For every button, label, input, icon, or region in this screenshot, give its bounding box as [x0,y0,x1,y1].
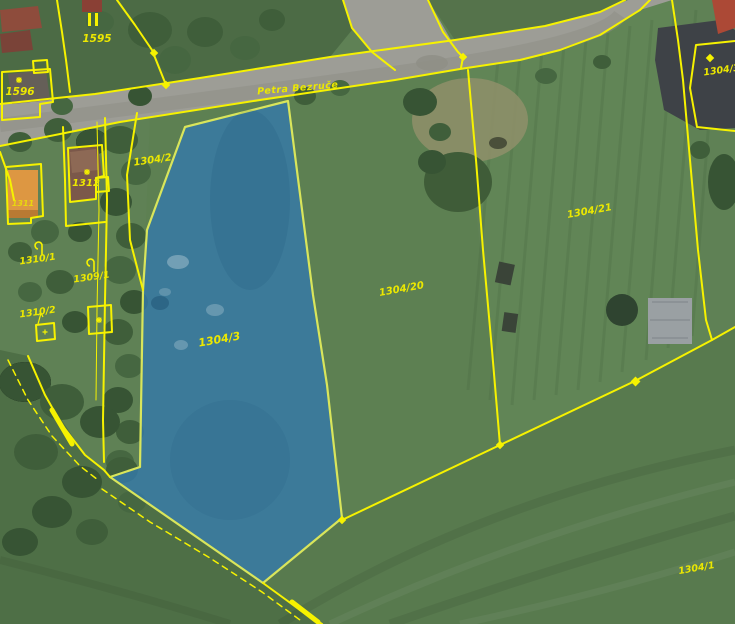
parcel-label-1311: 1311 [12,199,34,208]
building-star-symbol-1596 [16,77,22,83]
building-star-symbol-1312 [84,169,90,175]
parcel-label-1596: 1596 [5,86,34,98]
map-canvas[interactable]: 1595 1596 1312 1311 1304/2 1310/1 1309/1… [0,0,735,624]
barn-roof [648,298,692,344]
building-star-symbol-shed [96,317,102,323]
cadastral-map-view[interactable]: 1595 1596 1312 1311 1304/2 1310/1 1309/1… [0,0,735,624]
parcel-label-1595: 1595 [82,33,111,45]
aerial-background [0,0,735,624]
parcel-label-1312: 1312 [72,178,100,189]
